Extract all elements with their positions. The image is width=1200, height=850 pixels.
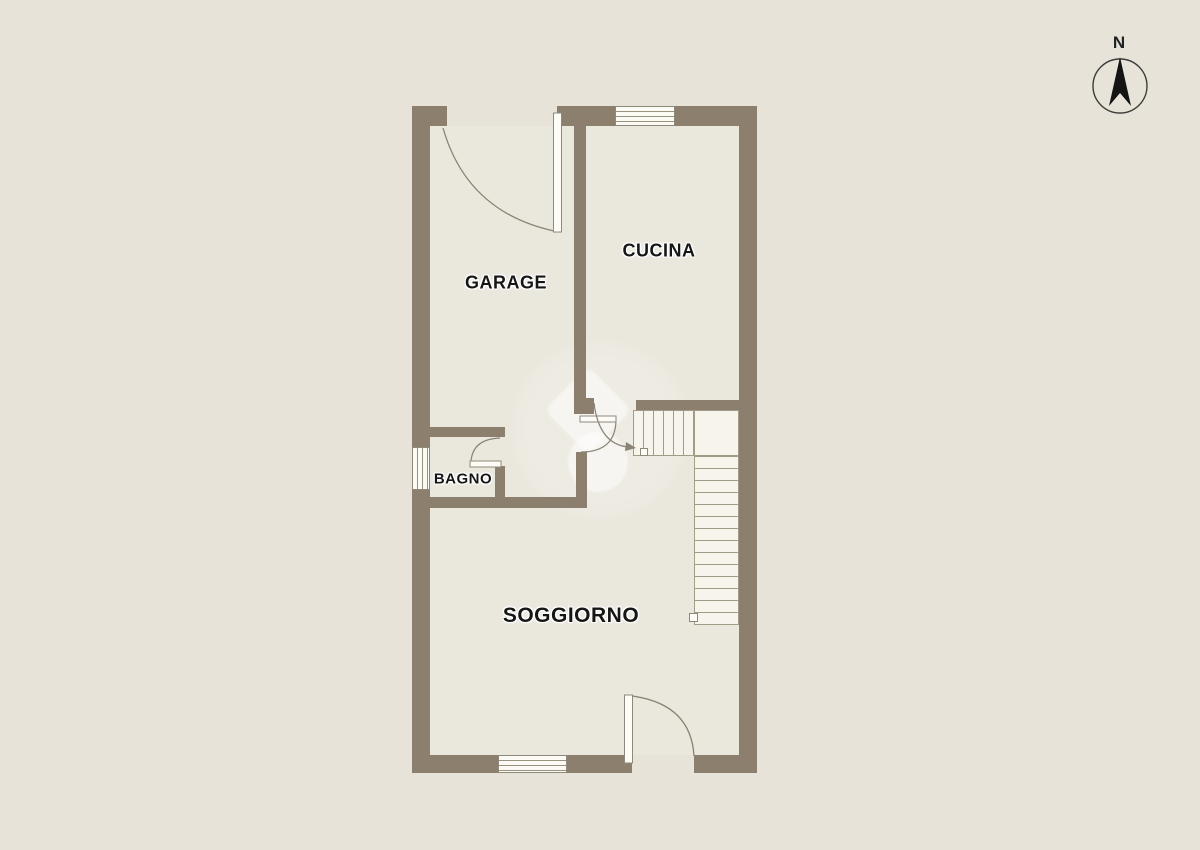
door-bagno (470, 438, 501, 467)
compass-north-label: N (1113, 33, 1125, 53)
room-label-cucina: CUCINA (623, 241, 696, 262)
door-garage (443, 113, 562, 232)
floor-plan-canvas: GARAGE CUCINA BAGNO SOGGIORNO N (0, 0, 1200, 850)
plan-linework (0, 0, 1200, 850)
room-label-soggiorno: SOGGIORNO (503, 604, 639, 628)
room-label-bagno: BAGNO (434, 471, 492, 488)
compass-icon (1093, 57, 1147, 113)
door-soggiorno (625, 695, 695, 763)
room-label-garage: GARAGE (465, 273, 547, 294)
